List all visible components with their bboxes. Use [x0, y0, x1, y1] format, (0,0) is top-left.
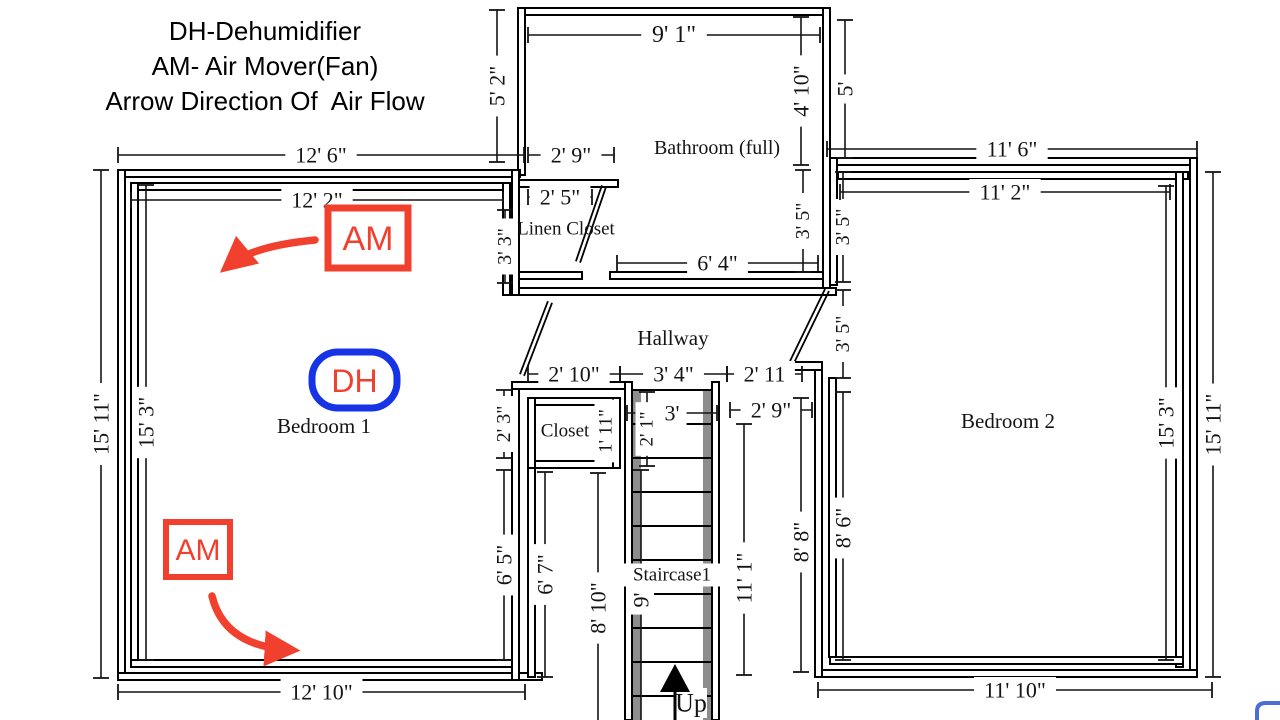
staircase-rail-right: [703, 390, 711, 720]
dim-stair-left: 8' 10": [585, 473, 611, 720]
dim-bedroom1-top-outer-label: 12' 6": [295, 143, 346, 168]
dim-stair-run-labelbox: 9': [628, 585, 654, 614]
label-bedroom1-text: Bedroom 1: [277, 414, 371, 438]
dim-bedroom1-right-upper: 2' 3": [492, 390, 516, 458]
label-bathroom-text: Bathroom (full): [654, 137, 780, 159]
dim-bath-right-labelbox: 4' 10": [788, 55, 814, 126]
door-bedroom2-edge: [790, 289, 825, 361]
wall-bedroom2-right-outer: [1190, 158, 1197, 677]
dim-nook-height-label: 6' 7": [533, 554, 558, 594]
airflow-arrow-2: [212, 596, 290, 650]
door-bedroom2: [790, 289, 829, 363]
dim-bath-left-labelbox: 5' 2": [484, 56, 510, 117]
dim-right-top-labelbox: 5': [832, 74, 858, 103]
wall-bedroom2-top-inner: [838, 172, 1188, 179]
dim-bedroom1-right-lower-label: 6' 5": [492, 545, 517, 585]
legend-line-arrow: Arrow Direction Of Air Flow: [55, 84, 475, 119]
dim-bedroom2-right-outer: 15' 11": [1200, 172, 1226, 677]
dim-bedroom2-top-inner: 11' 2": [840, 179, 1170, 205]
dim-corridor-height-label: 11' 1": [732, 553, 757, 604]
label-staircase-text: Staircase1: [633, 565, 711, 586]
wall-bathroom-top: [518, 8, 830, 15]
label-staircase: Staircase1: [622, 564, 723, 587]
dim-hallway-left-label: 2' 10": [548, 362, 599, 387]
label-linen-closet-text: Linen Closet: [517, 219, 615, 240]
dim-stair-upper-labelbox: 2' 1": [636, 402, 659, 456]
legend: DH-Dehumidifier AM- Air Mover(Fan) Arrow…: [55, 14, 475, 119]
dim-bath-left-label: 5' 2": [485, 66, 510, 106]
blue-corner-fragment: [1257, 703, 1280, 720]
dim-corridor-height: 11' 1": [731, 424, 757, 675]
am-unit-1-label: AM: [343, 220, 394, 258]
dim-stair-left-label: 8' 10": [586, 582, 611, 633]
dim-bedroom2-leftwall-inner-labelbox: 8' 6": [830, 498, 856, 559]
dim-linen-left-labelbox: 3' 3": [493, 219, 517, 275]
dim-linen-top: 2' 9": [528, 142, 614, 168]
wall-linen-bottom: [518, 272, 582, 279]
dim-hallway-right-label: 2' 11: [744, 362, 786, 387]
wall-bedroom1-bottom-inner: [131, 660, 512, 667]
dim-bedroom2-left-mid-label: 3' 5": [832, 316, 854, 353]
am-unit-2-label: AM: [176, 534, 221, 567]
dim-hallway-mid: 3' 4": [620, 361, 727, 387]
dim-bedroom1-bottom: 12' 10": [118, 679, 525, 705]
label-bathroom: Bathroom (full): [654, 137, 780, 159]
up-arrow-head: [660, 664, 690, 692]
dim-closet-height: 1' 11": [595, 400, 618, 463]
dim-right-top: 5': [832, 20, 858, 158]
label-up: Up: [675, 688, 707, 718]
label-bedroom1: Bedroom 1: [277, 414, 371, 438]
dim-hallway-left: 2' 10": [528, 361, 620, 387]
wall-bedroom1-left-outer: [118, 170, 125, 680]
dim-bedroom2-top-outer-label: 11' 6": [987, 137, 1038, 162]
dim-bedroom1-left-outer: 15' 11": [88, 170, 114, 678]
dh-unit: DH: [312, 352, 397, 408]
dim-bath-bottom-label: 6' 4": [697, 251, 737, 276]
dim-bath-top-label: 9' 1": [652, 22, 696, 48]
label-bedroom2: Bedroom 2: [961, 409, 1055, 433]
dim-bedroom1-left-inner-label: 15' 3": [134, 397, 159, 448]
dim-linen-top-label: 2' 9": [551, 143, 591, 168]
dim-bedroom2-bottom-label: 11' 10": [984, 678, 1046, 703]
dim-bedroom2-right-inner-label: 15' 3": [1154, 397, 1179, 448]
dim-bath-right-lower: 3' 5": [791, 170, 815, 272]
wall-hallway-top: [519, 288, 836, 295]
label-hallway-text: Hallway: [637, 326, 709, 350]
dim-bedroom2-top-inner-label: 11' 2": [980, 180, 1031, 205]
dim-nook-height-labelbox: 6' 7": [532, 544, 558, 605]
dim-stair-width-label: 3': [665, 401, 680, 426]
dim-bedroom1-right-lower-labelbox: 6' 5": [491, 535, 517, 596]
dim-linen-inner-label: 2' 5": [540, 185, 580, 210]
dim-bath-top: 9' 1": [528, 21, 820, 49]
legend-line-am: AM- Air Mover(Fan): [55, 49, 475, 84]
dim-bedroom2-right-outer-label: 15' 11": [1201, 394, 1226, 456]
dim-bedroom2-bottom: 11' 10": [818, 677, 1212, 703]
dim-bedroom1-right-upper-labelbox: 2' 3": [492, 396, 516, 452]
label-linen-closet: Linen Closet: [517, 219, 615, 240]
label-closet: Closet: [541, 421, 590, 442]
dim-hallway-mid-label: 3' 4": [653, 362, 693, 387]
dim-bedroom2-leftwall-outer-label: 8' 8": [789, 522, 814, 562]
dim-bedroom2-left-mid: 3' 5": [831, 290, 855, 378]
dim-closet-height-label: 1' 11": [596, 409, 617, 453]
wall-bedroom2-left-lower-outer: [815, 366, 822, 677]
am-unit-1: AM: [328, 208, 408, 268]
dim-bedroom2-leftwall-outer-labelbox: 8' 8": [788, 512, 814, 573]
airflow-arrow-1: [228, 240, 315, 266]
dim-hallway-right: 2' 11: [727, 361, 802, 387]
wall-bedroom2-bottom-outer: [815, 670, 1197, 677]
dim-linen-left: 3' 3": [493, 210, 517, 283]
dim-linen-left-label: 3' 3": [494, 228, 516, 265]
dim-stair-upper: 2' 1": [636, 392, 659, 466]
dim-corridor-width: 2' 9": [730, 397, 812, 423]
dim-bedroom2-left-mid-labelbox: 3' 5": [831, 306, 855, 362]
dim-bath-left: 5' 2": [484, 10, 510, 162]
dim-bath-right: 4' 10": [788, 17, 814, 165]
dim-linen-inner: 2' 5": [528, 184, 592, 210]
dim-bedroom1-left-outer-labelbox: 15' 11": [88, 383, 114, 465]
dim-bedroom1-top-outer: 12' 6": [118, 142, 524, 168]
wall-stair-left: [625, 382, 632, 720]
dim-bath-right-lower-label: 3' 5": [792, 203, 814, 240]
dim-bedroom1-left-inner-labelbox: 15' 3": [133, 387, 159, 458]
dim-bedroom2-leftwall-inner-label: 8' 6": [831, 508, 856, 548]
dim-bedroom2-right-outer-labelbox: 15' 11": [1200, 384, 1226, 466]
label-bedroom2-text: Bedroom 2: [961, 409, 1055, 433]
dim-corridor-height-labelbox: 11' 1": [731, 542, 757, 613]
am-unit-2: AM: [166, 522, 230, 577]
legend-line-dh: DH-Dehumidifier: [55, 14, 475, 49]
dim-stair-run-label: 9': [629, 592, 654, 607]
dim-corridor-width-label: 2' 9": [751, 398, 791, 423]
dim-bath-right-lower-labelbox: 3' 5": [791, 193, 815, 249]
label-up-text: Up: [675, 689, 707, 718]
label-hallway: Hallway: [637, 326, 709, 350]
dim-bedroom1-left-outer-label: 15' 11": [89, 393, 114, 455]
dim-bedroom1-right-upper-label: 2' 3": [493, 406, 515, 443]
door-bedroom2-edge: [794, 291, 829, 363]
label-closet-text: Closet: [541, 421, 590, 442]
dim-bath-right-label: 4' 10": [789, 65, 814, 116]
dim-bedroom2-leftwall-outer: 8' 8": [788, 398, 814, 672]
wall-stair-right: [712, 382, 719, 720]
dim-bedroom2-left-upper-label: 3' 5": [832, 209, 854, 246]
dim-bedroom2-right-inner-labelbox: 15' 3": [1153, 387, 1179, 458]
dim-bedroom1-bottom-label: 12' 10": [290, 680, 352, 705]
dim-closet-height-labelbox: 1' 11": [595, 400, 618, 463]
dh-unit-label: DH: [331, 363, 377, 399]
floorplan-page: 12' 6"12' 2"15' 11"15' 3"12' 10"2' 3"6' …: [0, 0, 1280, 720]
dim-stair-upper-label: 2' 1": [637, 412, 658, 447]
dim-stair-left-labelbox: 8' 10": [585, 572, 611, 643]
dim-right-top-label: 5': [833, 81, 858, 96]
wall-bedroom2-bottom-inner: [830, 657, 1183, 664]
wall-closet-left: [528, 398, 535, 468]
dim-bedroom2-left-upper-labelbox: 3' 5": [831, 199, 855, 255]
wall-bedroom1-top-outer: [120, 170, 520, 177]
